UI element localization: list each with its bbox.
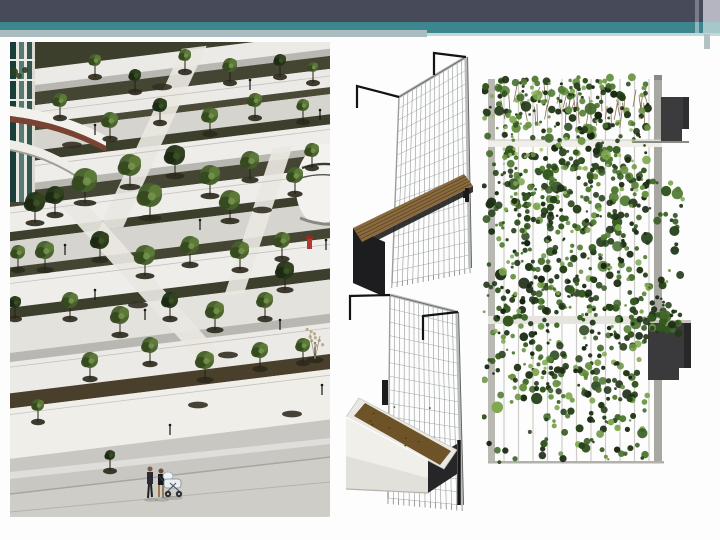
header-right-tab: [704, 34, 710, 49]
plaza-aerial-photo: [10, 42, 330, 517]
header-bar-dark-gap: [695, 0, 699, 22]
header-bar-dark: [0, 0, 703, 22]
trellis-planter-render-bottom: [345, 288, 480, 513]
base-line: [488, 461, 664, 464]
header-teal-underline: [427, 33, 720, 36]
trellis-planter-render-top: [345, 45, 480, 295]
header-bar-dark-end: [703, 0, 720, 22]
slide-canvas: [0, 0, 720, 540]
green-facade-elevation: [482, 73, 692, 468]
header-accent-band: [0, 30, 427, 37]
